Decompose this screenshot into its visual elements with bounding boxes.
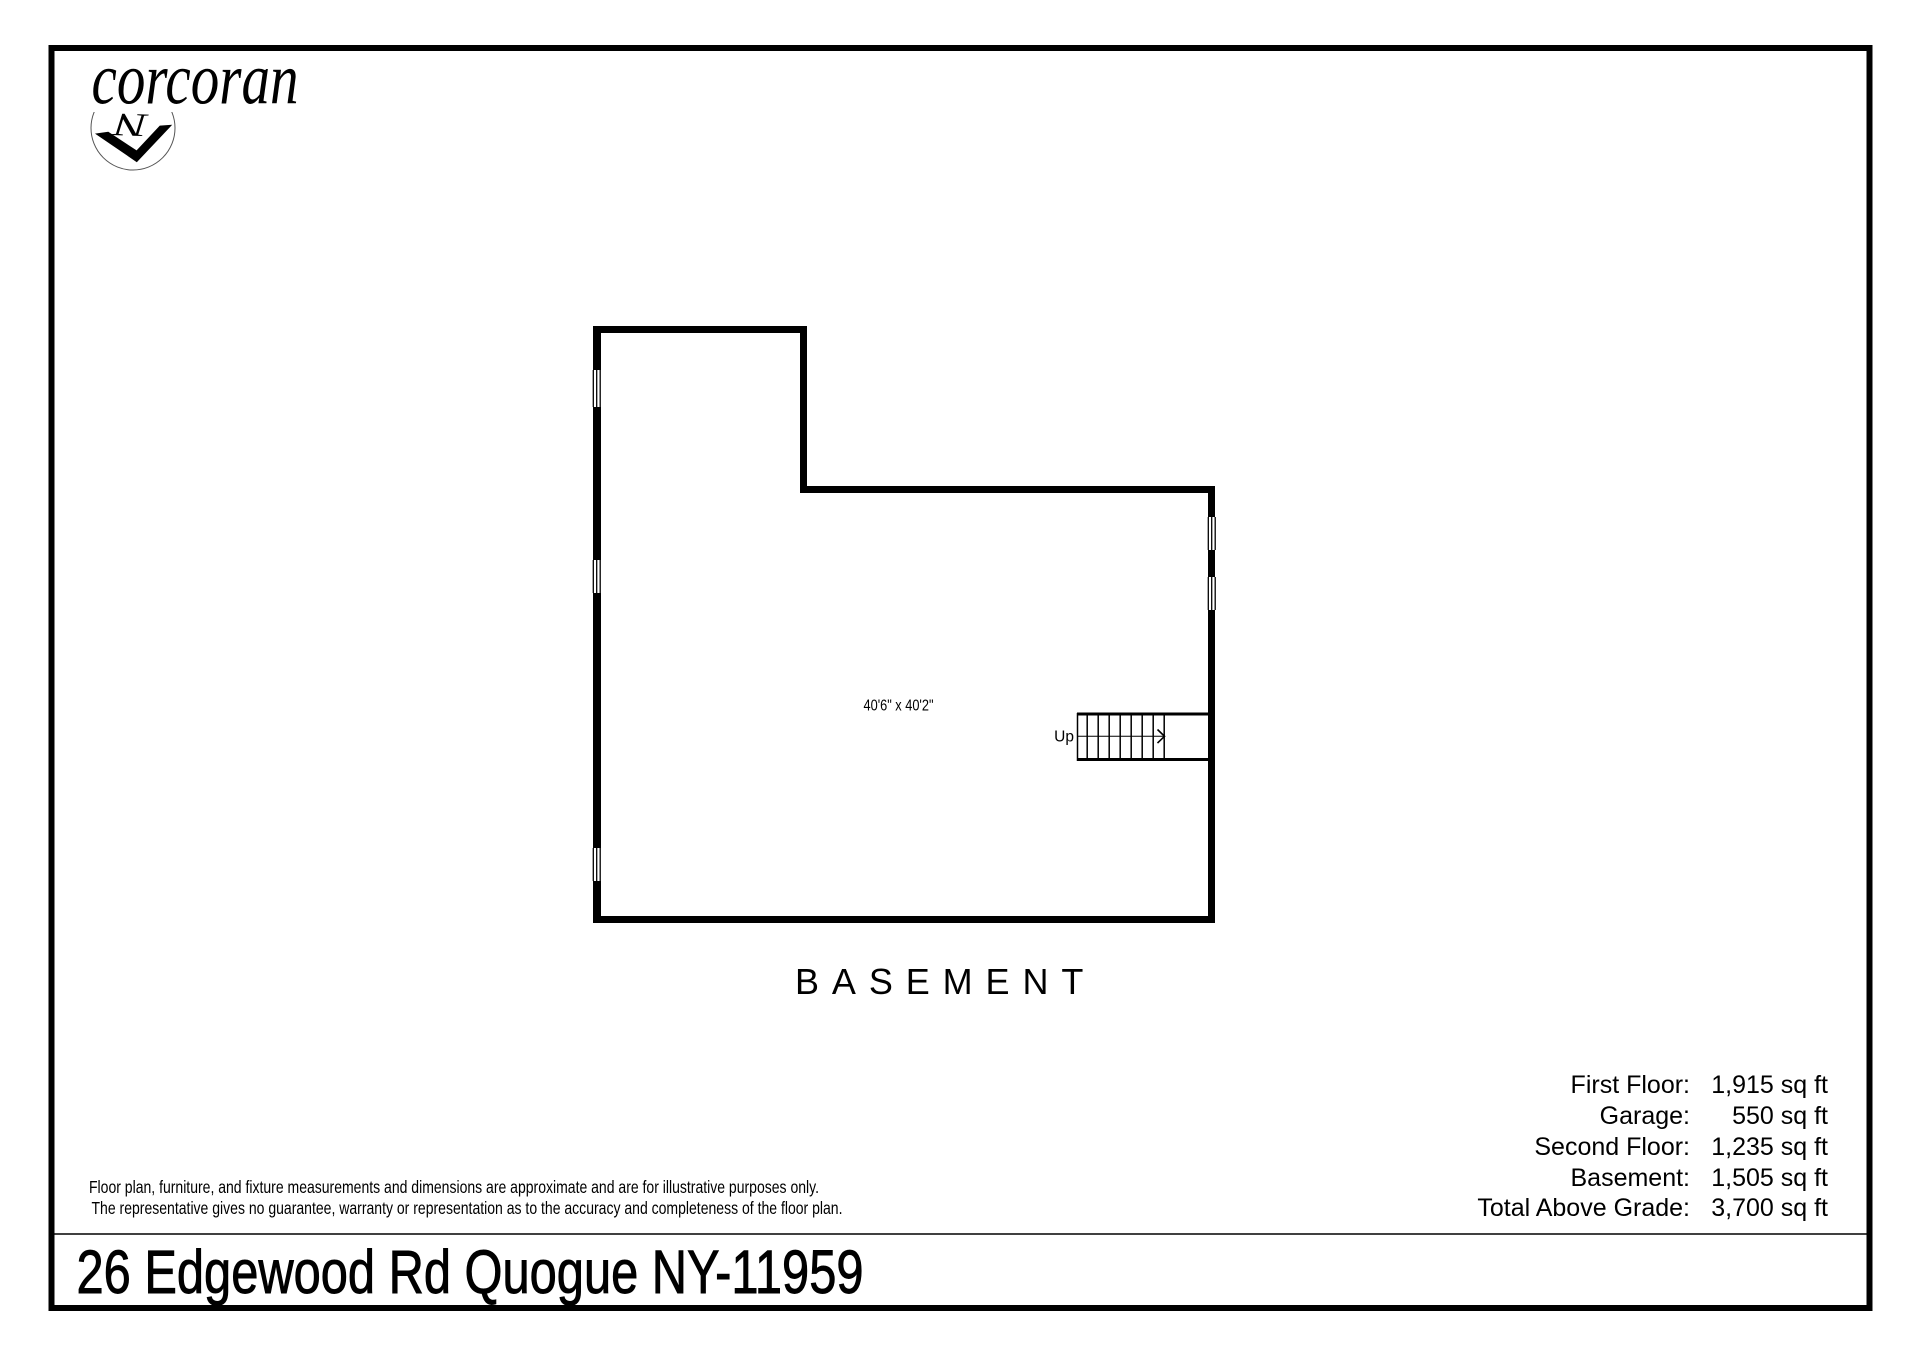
svg-text:40'6" x 40'2": 40'6" x 40'2" — [864, 698, 934, 715]
svg-text:First Floor:: First Floor: — [1571, 1071, 1690, 1099]
svg-text:The representative gives no gu: The representative gives no guarantee, w… — [92, 1198, 843, 1218]
svg-text:550 sq ft: 550 sq ft — [1732, 1102, 1828, 1130]
svg-text:BASEMENT: BASEMENT — [795, 961, 1096, 1002]
svg-text:Floor plan, furniture, and fix: Floor plan, furniture, and fixture measu… — [89, 1177, 819, 1197]
svg-text:3,700 sq ft: 3,700 sq ft — [1711, 1194, 1828, 1222]
svg-text:Garage:: Garage: — [1600, 1102, 1690, 1130]
svg-text:1,505 sq ft: 1,505 sq ft — [1711, 1164, 1828, 1192]
svg-text:Total Above Grade:: Total Above Grade: — [1477, 1194, 1690, 1222]
svg-text:1,915 sq ft: 1,915 sq ft — [1711, 1071, 1828, 1099]
svg-text:Up: Up — [1054, 729, 1074, 746]
svg-text:corcoran: corcoran — [92, 39, 299, 120]
svg-text:1,235 sq ft: 1,235 sq ft — [1711, 1133, 1828, 1161]
svg-text:26 Edgewood Rd Quogue NY-11959: 26 Edgewood Rd Quogue NY-11959 — [77, 1238, 864, 1306]
svg-text:Basement:: Basement: — [1570, 1164, 1690, 1192]
svg-text:Second Floor:: Second Floor: — [1534, 1133, 1690, 1161]
